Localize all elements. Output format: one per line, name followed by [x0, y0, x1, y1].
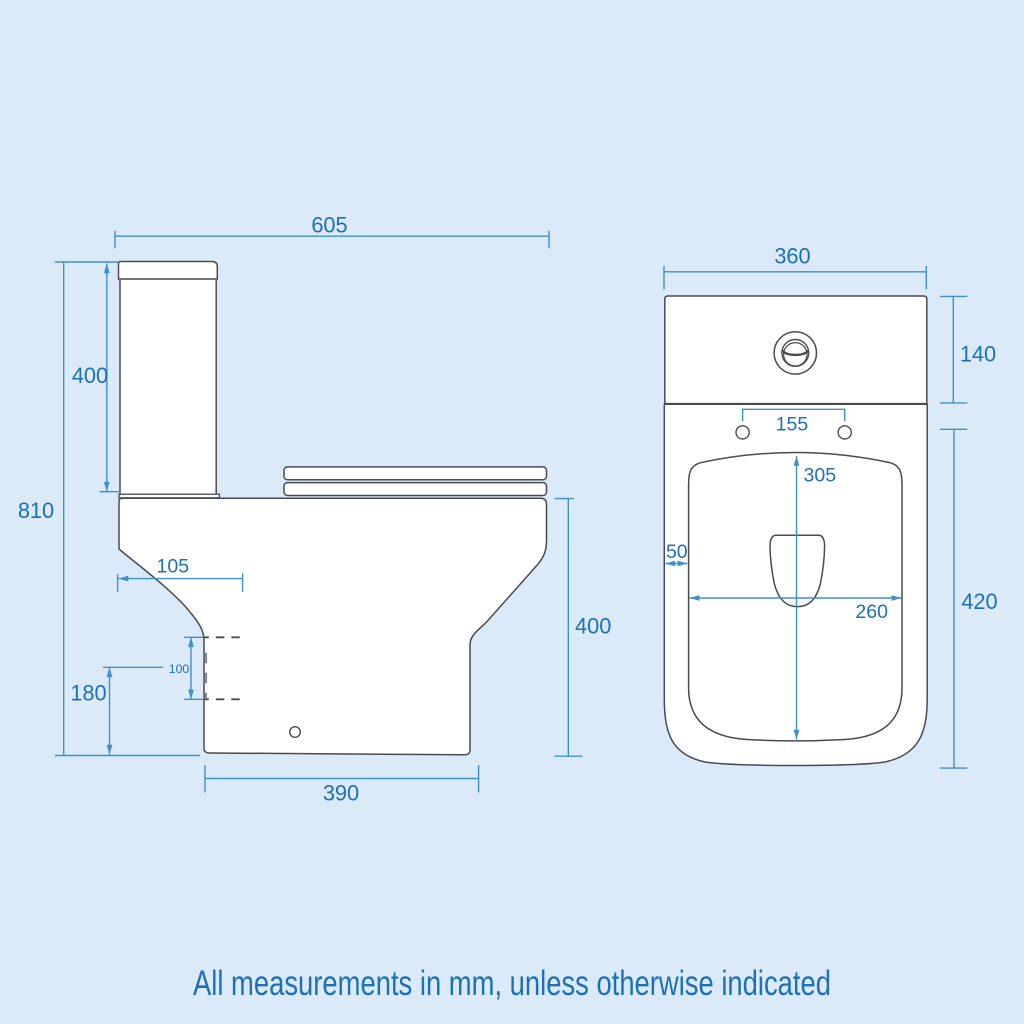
- svg-text:400: 400: [72, 363, 108, 388]
- svg-text:305: 305: [804, 465, 837, 487]
- svg-text:180: 180: [70, 681, 106, 706]
- svg-text:100: 100: [169, 662, 190, 676]
- svg-text:400: 400: [575, 613, 611, 638]
- svg-text:50: 50: [666, 541, 688, 563]
- svg-text:605: 605: [311, 212, 347, 237]
- svg-text:420: 420: [961, 589, 997, 614]
- svg-text:360: 360: [774, 244, 810, 269]
- svg-text:390: 390: [323, 781, 359, 806]
- svg-text:All measurements in mm, unless: All measurements in mm, unless otherwise…: [193, 963, 831, 1003]
- svg-text:105: 105: [157, 555, 190, 577]
- svg-text:810: 810: [18, 498, 54, 523]
- svg-text:260: 260: [855, 601, 888, 623]
- svg-text:155: 155: [776, 413, 809, 435]
- svg-text:140: 140: [960, 341, 996, 366]
